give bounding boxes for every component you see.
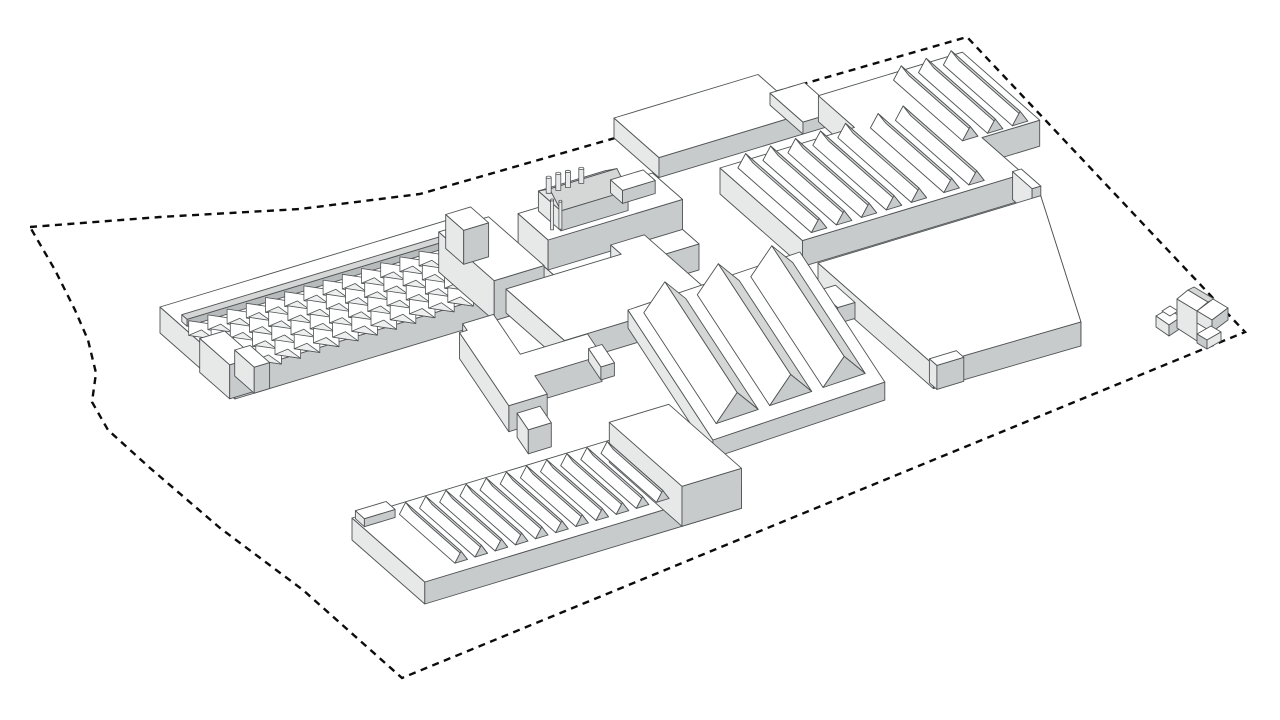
axonometric-site-diagram: [0, 0, 1280, 720]
building-gatehouse: [1156, 287, 1228, 349]
site-axon-svg: [0, 0, 1280, 720]
